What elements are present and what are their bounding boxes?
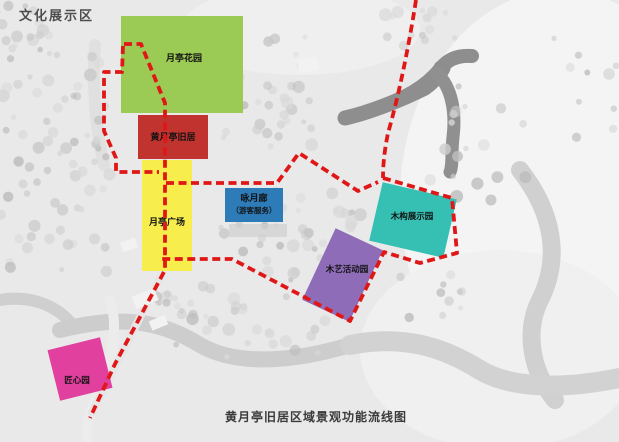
zone-moon-corridor-sublabel: （游客服务）	[232, 205, 277, 215]
zone-yueting-flower-garden: 月亭花园	[121, 16, 243, 113]
zone-moon-corridor-shadow	[229, 224, 287, 237]
zone-yueting-plaza: 月亭广场	[142, 160, 192, 271]
site-plan: 月亭花园 黄月亭旧居 月亭广场 咏月廊 （游客服务） 木构展示园 木艺活动园 匠…	[0, 0, 619, 442]
zone-craftsmanship-garden-label: 匠心园	[64, 375, 90, 386]
zone-yueting-flower-garden-shape	[121, 16, 243, 113]
zone-wood-structure-display-garden-label: 木构展示园	[390, 211, 434, 222]
zone-yueting-plaza-shape	[142, 160, 192, 271]
zone-moon-corridor-label: 咏月廊	[240, 192, 267, 204]
zone-huang-yueting-residence-label: 黄月亭旧居	[150, 131, 195, 143]
zone-huang-yueting-residence: 黄月亭旧居	[138, 115, 208, 159]
zone-wood-craft-activity-garden-label: 木艺活动园	[325, 264, 369, 275]
zone-yueting-flower-garden-label: 月亭花园	[165, 52, 202, 64]
map-caption: 黄月亭旧居区域景观功能流线图	[225, 409, 407, 424]
zone-moon-corridor: 咏月廊 （游客服务）	[225, 188, 287, 237]
area-title: 文化展示区	[19, 8, 94, 24]
